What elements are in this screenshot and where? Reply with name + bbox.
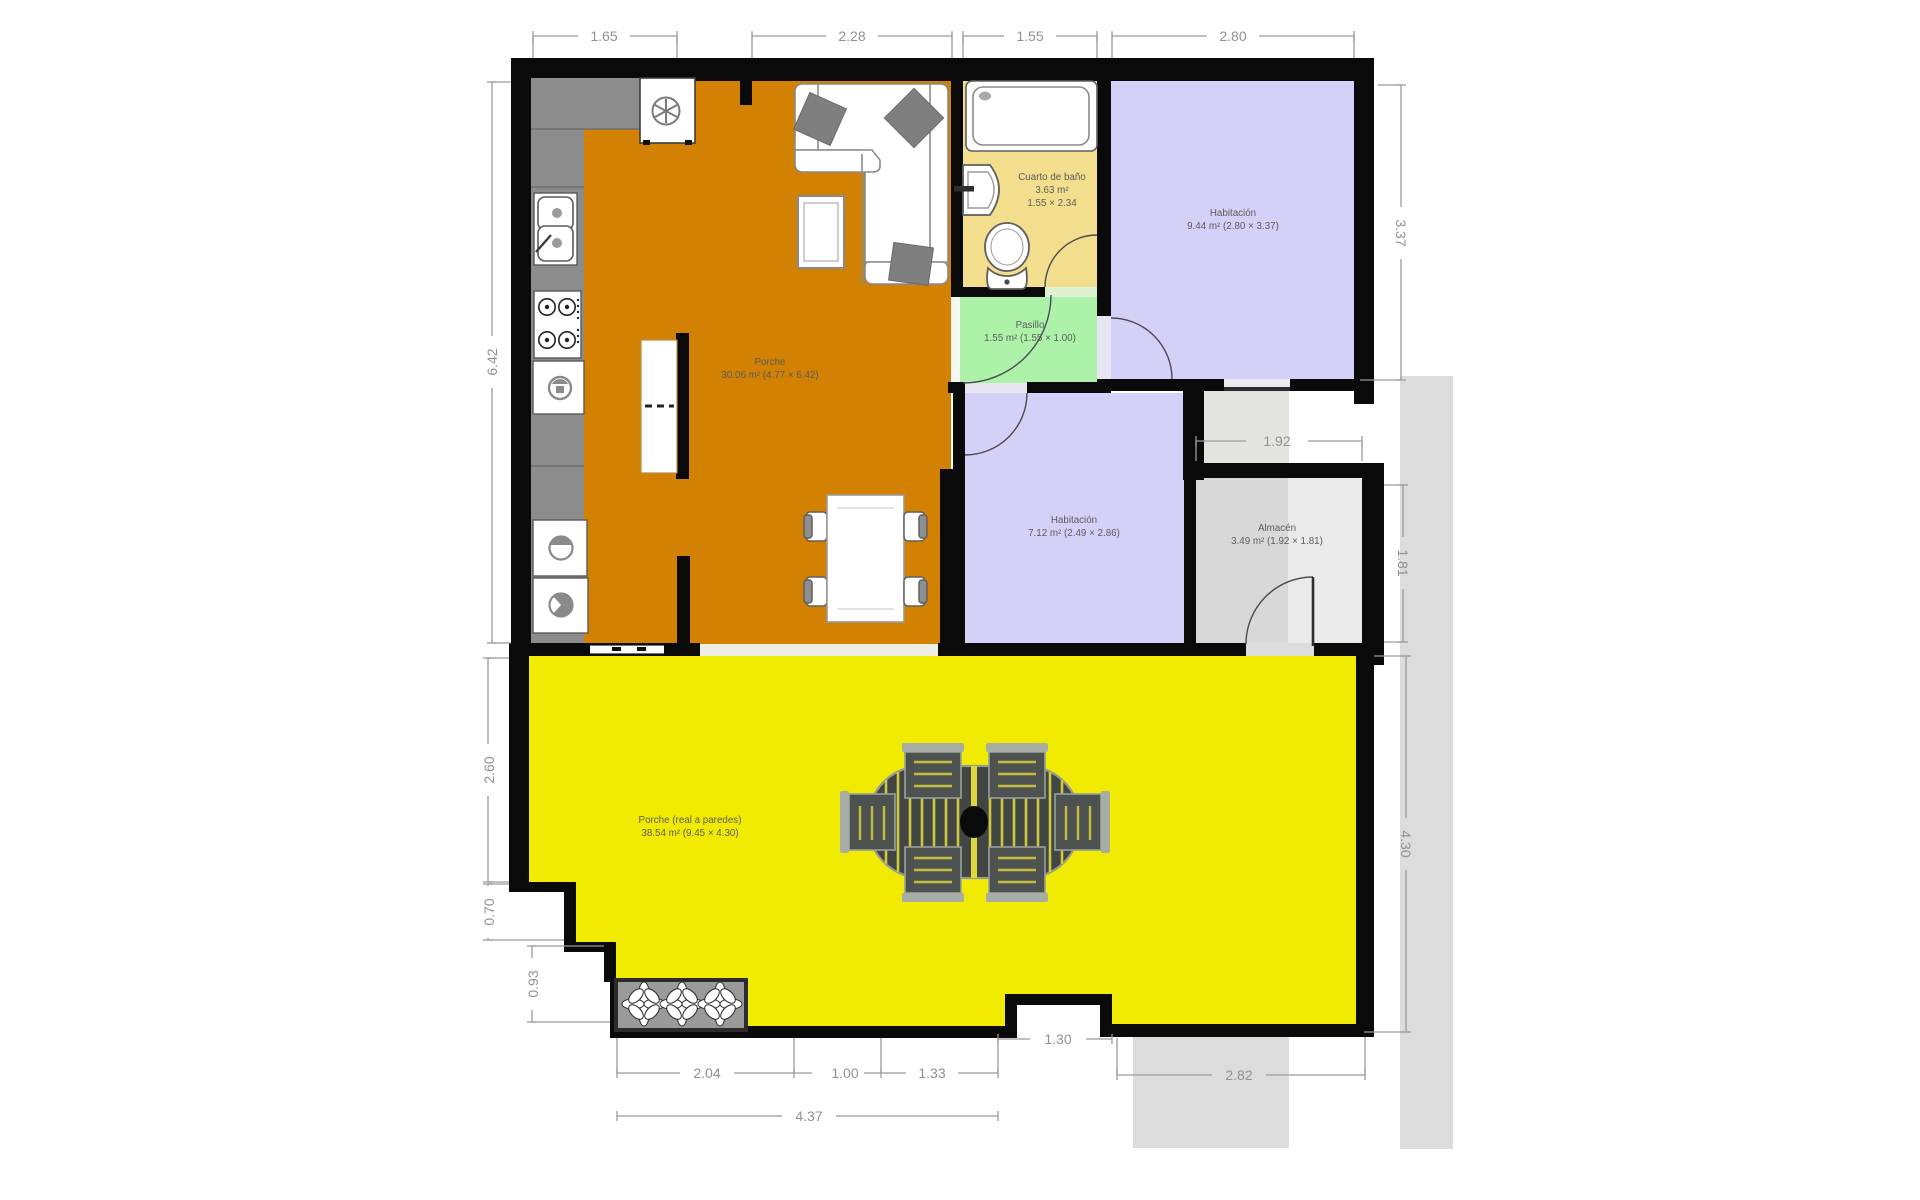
svg-text:3.37: 3.37	[1393, 219, 1409, 246]
svg-text:1.81: 1.81	[1395, 549, 1411, 576]
svg-text:0.70: 0.70	[481, 898, 497, 925]
svg-text:2.04: 2.04	[693, 1065, 720, 1081]
svg-text:38.54 m² (9.45 × 4.30): 38.54 m² (9.45 × 4.30)	[641, 828, 738, 839]
svg-text:Pasillo: Pasillo	[1016, 320, 1045, 331]
svg-text:1.55 × 2.34: 1.55 × 2.34	[1027, 198, 1077, 209]
svg-text:1.00: 1.00	[831, 1065, 858, 1081]
svg-text:1.92: 1.92	[1263, 433, 1290, 449]
svg-text:Almacén: Almacén	[1258, 523, 1296, 534]
svg-text:2.60: 2.60	[481, 756, 497, 783]
svg-text:1.33: 1.33	[918, 1065, 945, 1081]
svg-text:Habitación: Habitación	[1051, 515, 1097, 526]
svg-text:0.93: 0.93	[525, 970, 541, 997]
svg-text:3.63 m²: 3.63 m²	[1035, 185, 1069, 196]
svg-text:30.06 m² (4.77 × 6.42): 30.06 m² (4.77 × 6.42)	[721, 370, 818, 381]
svg-text:2.82: 2.82	[1225, 1067, 1252, 1083]
svg-text:Porche: Porche	[754, 357, 786, 368]
svg-text:4.30: 4.30	[1398, 830, 1414, 857]
svg-text:2.28: 2.28	[838, 28, 865, 44]
svg-text:3.49 m² (1.92 × 1.81): 3.49 m² (1.92 × 1.81)	[1231, 536, 1323, 547]
svg-text:Cuarto de baño: Cuarto de baño	[1018, 172, 1086, 183]
svg-text:1.30: 1.30	[1044, 1031, 1071, 1047]
svg-text:1.55 m² (1.55 × 1.00): 1.55 m² (1.55 × 1.00)	[984, 333, 1076, 344]
svg-text:Porche (real a paredes): Porche (real a paredes)	[639, 815, 742, 826]
svg-text:4.37: 4.37	[795, 1108, 822, 1124]
svg-text:1.65: 1.65	[590, 28, 617, 44]
svg-text:Habitación: Habitación	[1210, 208, 1256, 219]
svg-text:9.44 m² (2.80 × 3.37): 9.44 m² (2.80 × 3.37)	[1187, 221, 1279, 232]
svg-text:7.12 m² (2.49 × 2.86): 7.12 m² (2.49 × 2.86)	[1028, 528, 1120, 539]
svg-text:2.80: 2.80	[1219, 28, 1246, 44]
svg-text:6.42: 6.42	[484, 348, 500, 375]
svg-text:1.55: 1.55	[1016, 28, 1043, 44]
